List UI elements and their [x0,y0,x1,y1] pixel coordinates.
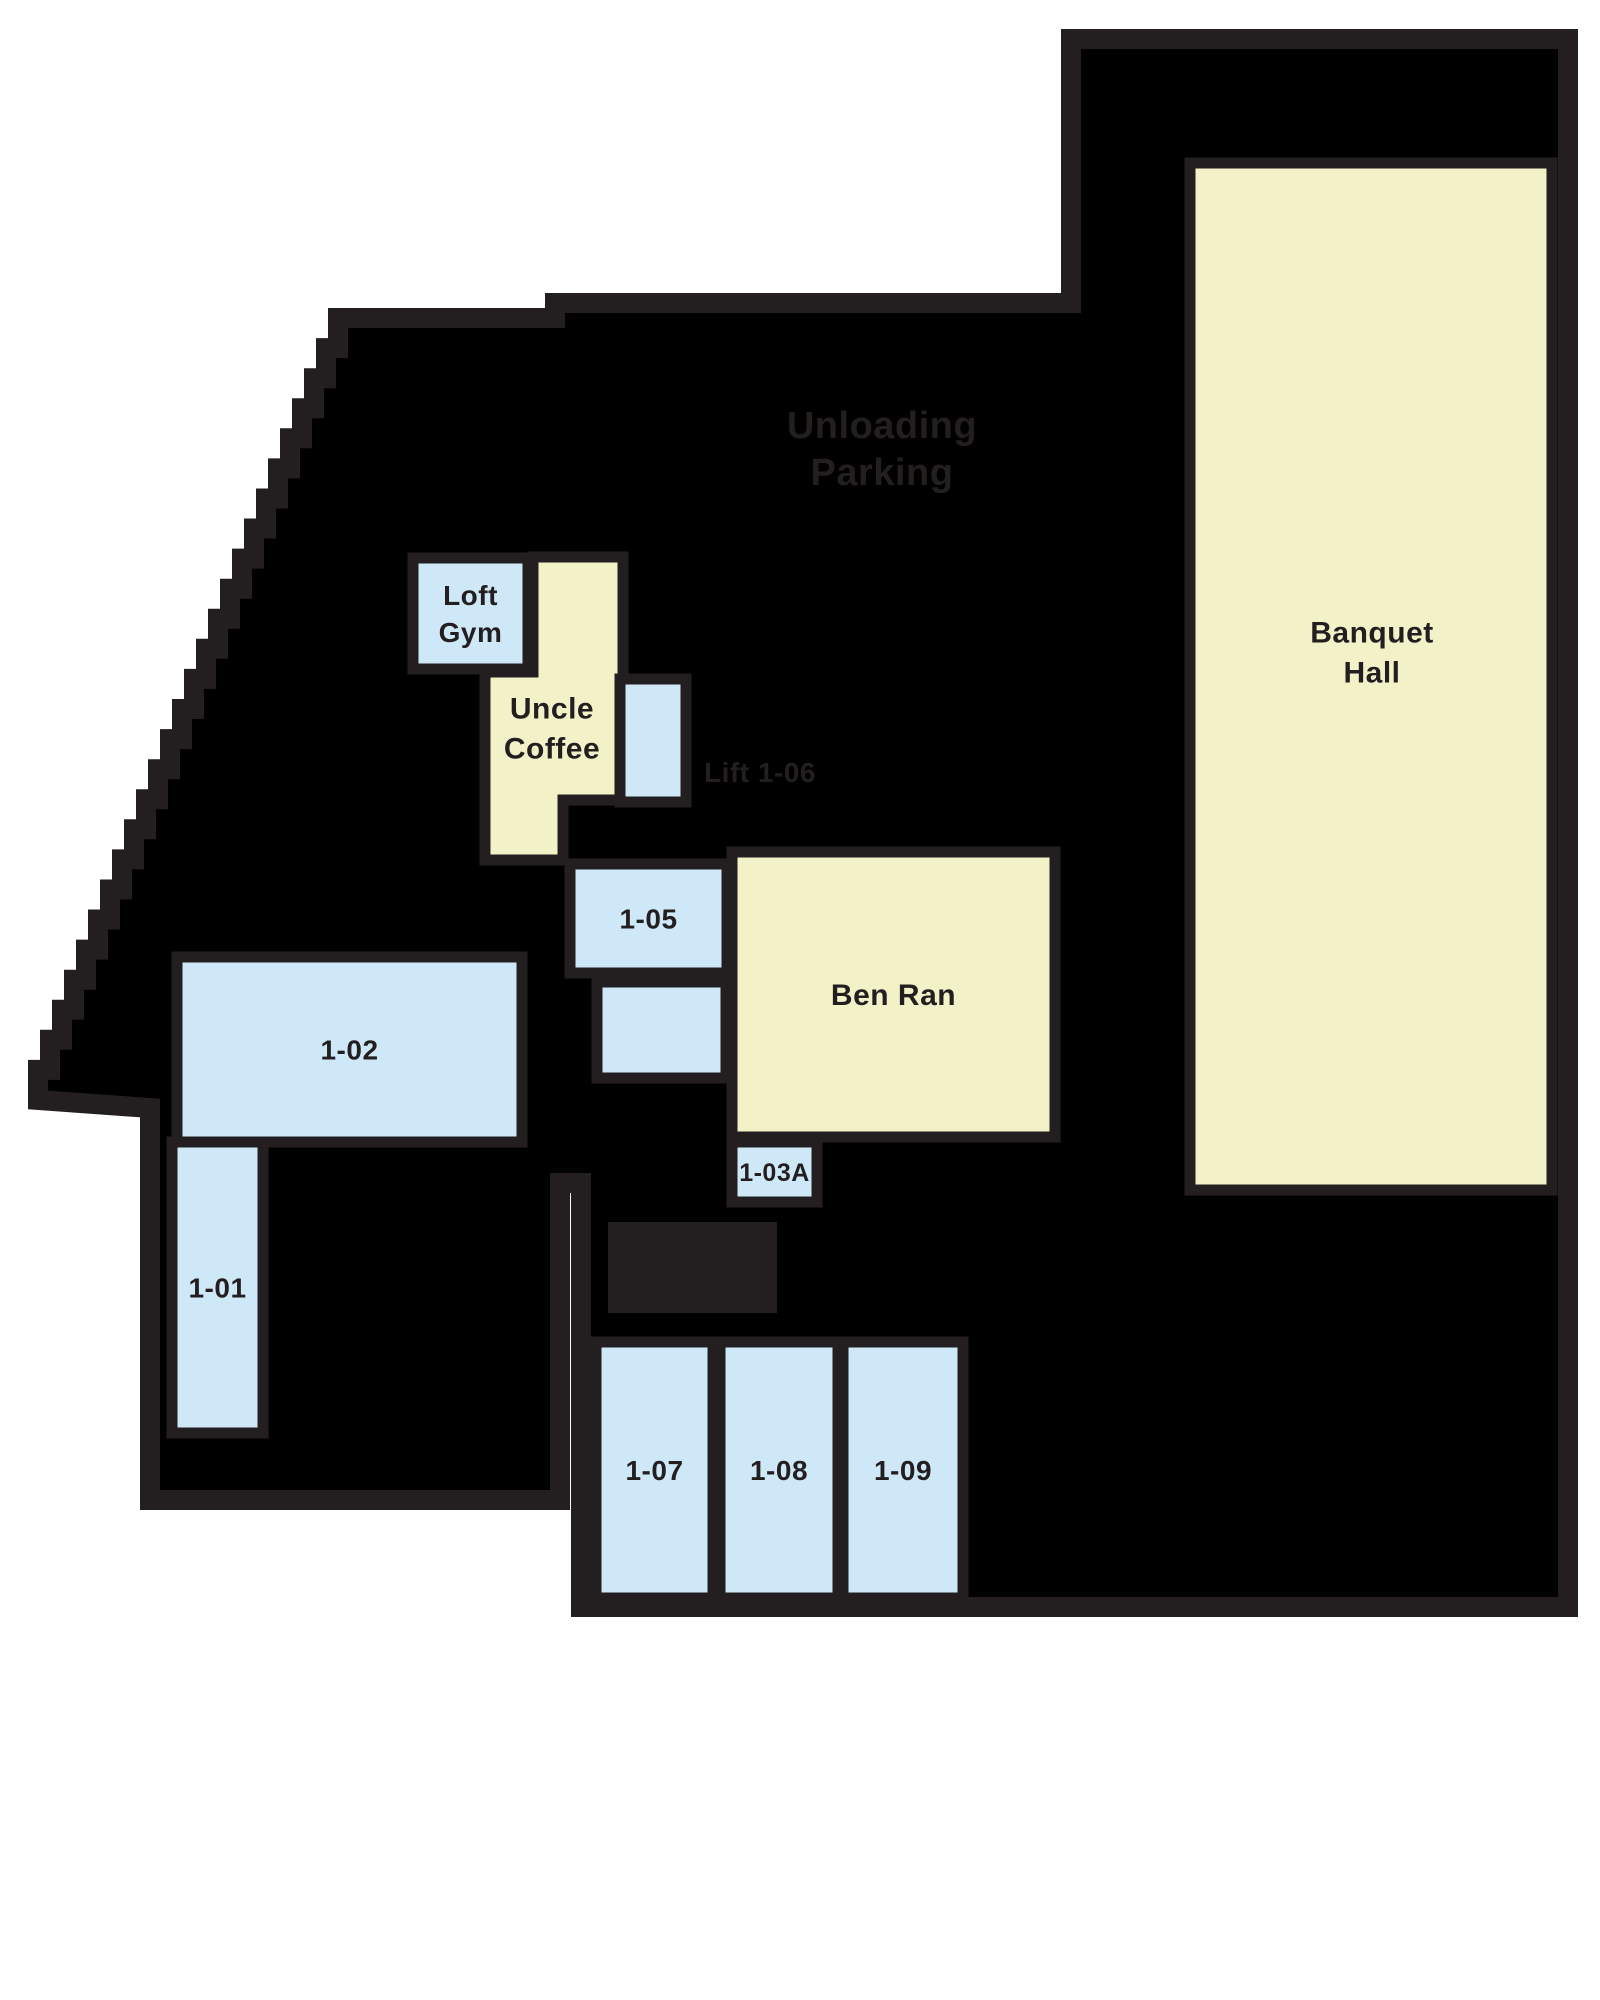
room-label: 1-01 [188,1272,246,1303]
floorplan-canvas: LoftGymUncleCoffee1-05Ben Ran1-03A1-021-… [0,0,1600,2000]
room-unit-1-09[interactable]: 1-09 [843,1342,963,1598]
room-unit-1-03a[interactable]: 1-03A [732,1142,817,1202]
room-label: 1-09 [874,1455,932,1486]
room-unit-1-01[interactable]: 1-01 [172,1142,263,1433]
room-ben-ran[interactable]: Ben Ran [732,852,1055,1137]
room-label: 1-07 [625,1455,683,1486]
service-core-structure [608,1222,777,1313]
room-banquet-hall[interactable]: BanquetHall [1190,163,1552,1190]
room-unit-1-08[interactable]: 1-08 [720,1342,838,1598]
room-unit-1-07[interactable]: 1-07 [596,1342,713,1598]
room-loft-gym[interactable]: LoftGym [413,558,528,669]
room-unit-1-06[interactable] [620,679,686,802]
room-unit-1-02[interactable]: 1-02 [177,957,522,1142]
room-unit-1-05[interactable]: 1-05 [570,864,727,973]
room-label: Ben Ran [831,979,956,1012]
zone-lift-label: Lift 1-06 [704,757,816,788]
room-shape[interactable] [620,679,686,802]
room-unit-1-04[interactable] [597,982,726,1078]
floorplan-svg: LoftGymUncleCoffee1-05Ben Ran1-03A1-021-… [0,0,1600,2000]
room-shape[interactable] [413,558,528,669]
room-label: 1-05 [619,903,677,934]
room-shape[interactable] [597,982,726,1078]
room-label: 1-02 [320,1034,378,1065]
room-label: 1-08 [750,1455,808,1486]
room-label: 1-03A [739,1159,810,1187]
